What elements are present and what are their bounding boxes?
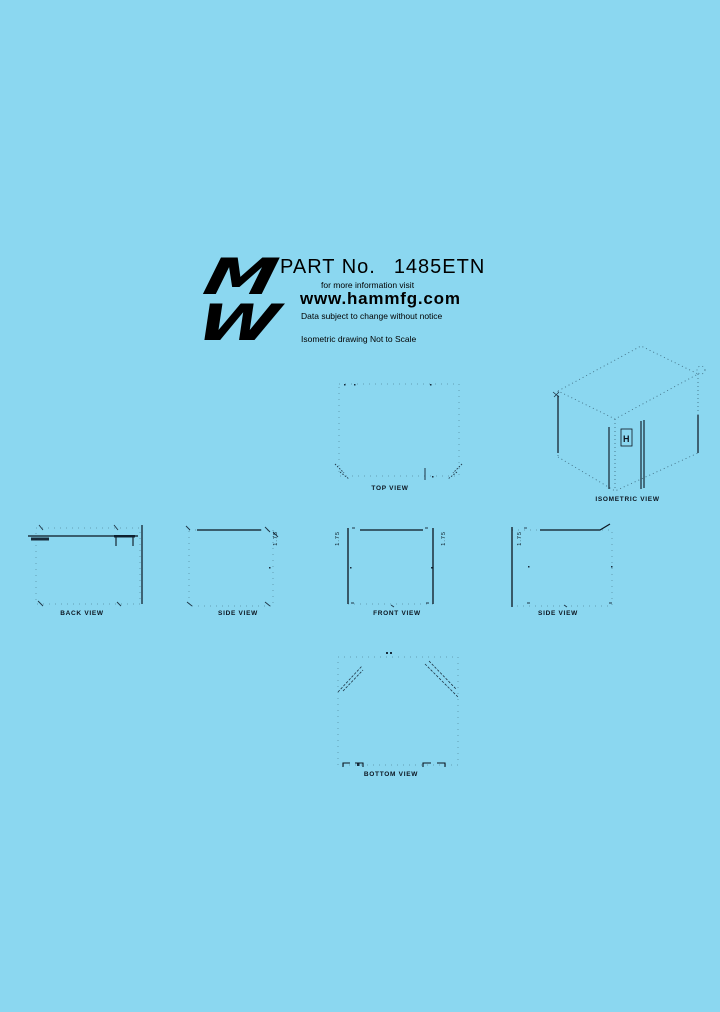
side-left-top-marks	[186, 526, 278, 537]
top-view-outline	[339, 384, 459, 476]
top-view-label: TOP VIEW	[322, 485, 458, 492]
disclaimer-text: Data subject to change without notice	[301, 311, 442, 321]
hammond-logo: M W	[196, 250, 282, 354]
iso-vertical-edges	[558, 374, 698, 491]
website-link[interactable]: www.hammfg.com	[300, 289, 461, 309]
scale-note: Isometric drawing Not to Scale	[301, 334, 416, 344]
part-number: 1485ETN	[394, 256, 486, 278]
part-number-line: PART No.1485ETN	[280, 256, 485, 279]
side-left-outline	[189, 530, 273, 606]
bottom-left-leader-callout	[338, 666, 363, 692]
back-hinge-bar	[31, 538, 49, 541]
datasheet-page: M W PART No.1485ETN for more information…	[0, 0, 720, 1012]
bottom-mount-slots	[343, 763, 445, 767]
front-left-dimension: 1.75	[335, 531, 341, 546]
front-side-edges	[348, 528, 433, 604]
side-right-dimension: 1.75	[517, 531, 523, 546]
back-view-drawing	[28, 522, 150, 612]
iso-bottom-edges	[558, 453, 698, 491]
top-view-corner-mark-left	[335, 464, 349, 479]
logo-w-glyph: W	[193, 300, 280, 346]
iso-top-face	[558, 346, 698, 419]
bottom-view-outline	[338, 657, 458, 765]
back-bracket-legs	[116, 537, 133, 546]
iso-panel-logo: H	[621, 429, 632, 446]
back-view-label: BACK VIEW	[22, 610, 142, 617]
part-label: PART No.	[280, 256, 376, 278]
iso-front-seams	[609, 420, 644, 489]
front-view-label: FRONT VIEW	[338, 610, 456, 617]
front-right-dimension: 1.75	[441, 531, 447, 546]
bottom-view-label: BOTTOM VIEW	[332, 771, 450, 778]
side-right-view-label: SIDE VIEW	[502, 610, 614, 617]
bottom-view-drawing	[330, 645, 466, 777]
side-left-view-label: SIDE VIEW	[182, 610, 294, 617]
back-view-outline	[36, 528, 140, 604]
iso-panel-logo-letter: H	[623, 434, 630, 444]
bottom-right-leader-callout	[425, 661, 458, 697]
back-bracket-top	[114, 535, 135, 538]
iso-corner-callout	[697, 366, 705, 374]
side-right-top-edge	[540, 524, 610, 530]
side-left-dimension: 1.75	[273, 531, 279, 546]
iso-left-corner-mark	[553, 392, 559, 397]
side-left-bottom-marks	[187, 602, 270, 606]
top-view-corner-mark-right	[448, 464, 462, 479]
isometric-view-label: ISOMETRIC VIEW	[560, 496, 695, 503]
side-right-outline	[512, 530, 612, 606]
top-view-drawing	[331, 376, 467, 488]
isometric-view-drawing: H	[548, 341, 708, 497]
back-corner-marks	[38, 525, 121, 606]
side-right-bottom-marks	[527, 603, 612, 607]
